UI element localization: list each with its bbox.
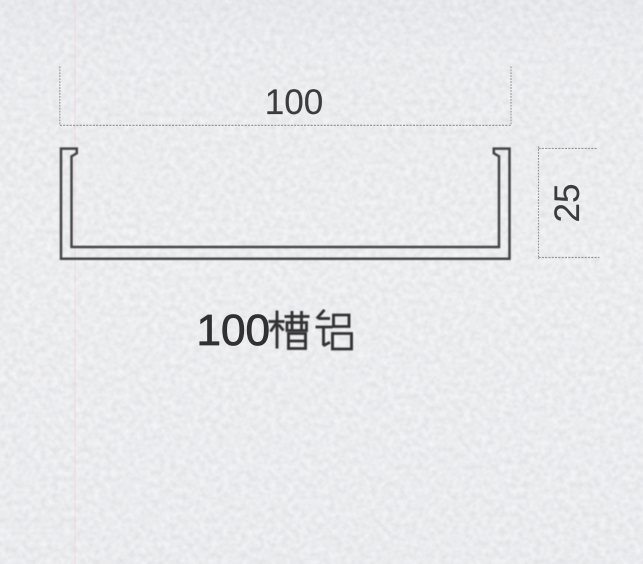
svg-text:100: 100: [265, 83, 324, 122]
svg-text:25: 25: [548, 184, 587, 223]
svg-text:100: 100: [197, 307, 271, 355]
